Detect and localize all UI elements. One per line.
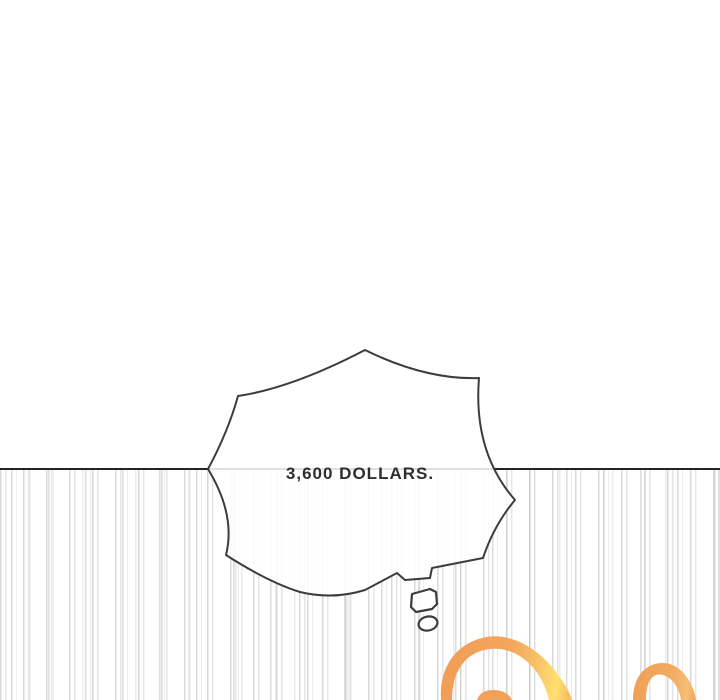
bubble-tail-oval: [417, 615, 438, 633]
comic-panel: 3,600 DOLLARS.: [0, 0, 720, 700]
speech-text: 3,600 DOLLARS.: [0, 464, 720, 484]
hair-curl-small: [633, 663, 696, 700]
hair-curl-inner: [477, 690, 512, 700]
bubble-tail-quad: [411, 589, 437, 612]
panel-artwork: [0, 0, 720, 700]
hair-curl-large: [441, 636, 572, 700]
